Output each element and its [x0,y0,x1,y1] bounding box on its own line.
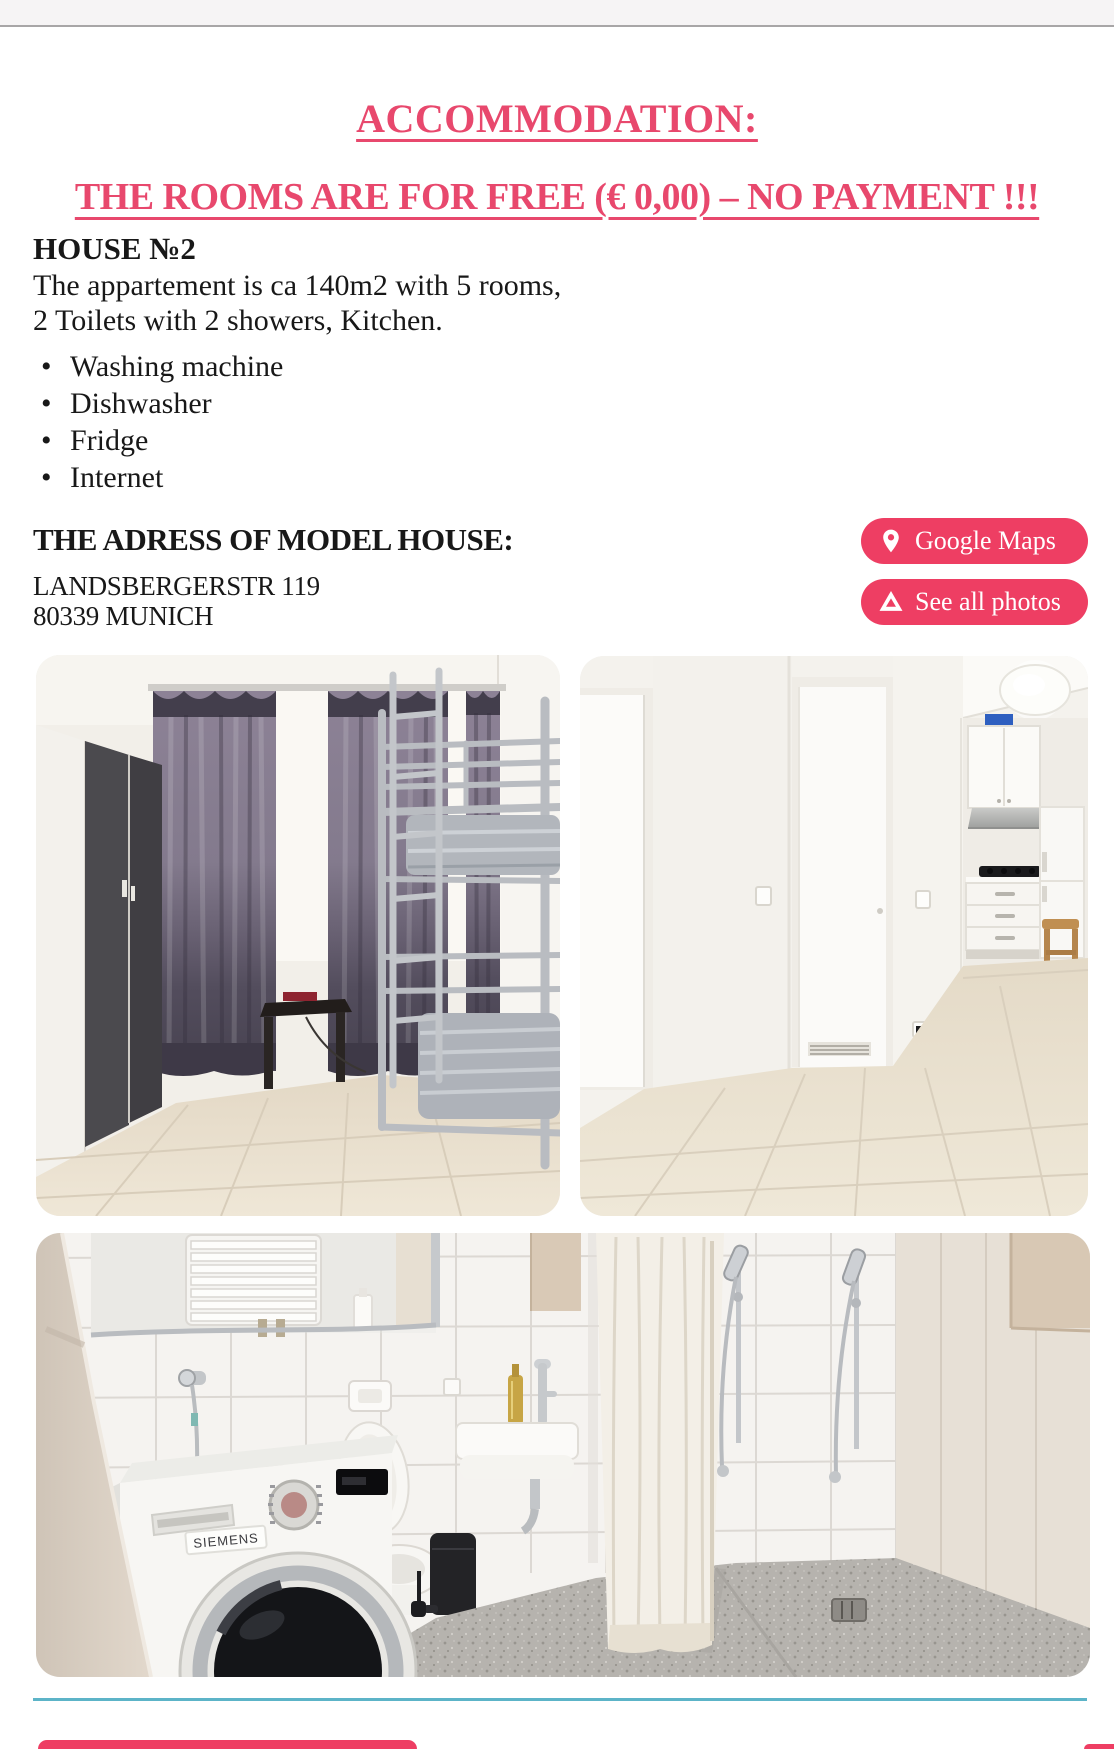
house-heading: HOUSE №2 [33,230,561,268]
address-city: 80339 MUNICH [33,601,320,631]
bedroom-photo[interactable] [36,655,560,1216]
see-all-photos-button[interactable]: See all photos [861,579,1088,625]
address: LANDSBERGERSTR 119 80339 MUNICH [33,571,320,631]
bathroom-photo-art: SIEMENS [36,1233,1090,1677]
address-heading: THE ADRESS OF MODEL HOUSE: [33,522,513,558]
google-drive-icon [878,589,904,615]
amenity-fridge: Fridge [33,422,561,459]
page: ACCOMMODATION: THE ROOMS ARE FOR FREE (€… [0,0,1114,1749]
top-bar [0,0,1114,27]
google-maps-label: Google Maps [915,526,1056,556]
bottom-pink-button-partial[interactable] [38,1740,417,1749]
bottom-right-pink-partial[interactable] [1084,1744,1114,1749]
free-rooms-headline: THE ROOMS ARE FOR FREE (€ 0,00) – NO PAY… [0,175,1114,219]
hallway-kitchen-photo[interactable] [580,656,1088,1216]
house-section: HOUSE №2 The appartement is ca 140m2 wit… [33,230,561,496]
house-description-line2: 2 Toilets with 2 showers, Kitchen. [33,303,561,338]
house-description-line1: The appartement is ca 140m2 with 5 rooms… [33,268,561,303]
see-all-photos-label: See all photos [915,587,1061,617]
teal-divider [33,1698,1087,1701]
address-street: LANDSBERGERSTR 119 [33,571,320,601]
bathroom-photo[interactable]: SIEMENS [36,1233,1090,1677]
page-title: ACCOMMODATION: [0,95,1114,142]
bedroom-photo-art [36,655,560,1216]
hallway-kitchen-photo-art [580,656,1088,1216]
amenity-internet: Internet [33,459,561,496]
location-pin-icon [878,528,904,554]
amenity-dishwasher: Dishwasher [33,385,561,422]
google-maps-button[interactable]: Google Maps [861,518,1088,564]
amenities-list: Washing machine Dishwasher Fridge Intern… [33,348,561,496]
amenity-washing-machine: Washing machine [33,348,561,385]
